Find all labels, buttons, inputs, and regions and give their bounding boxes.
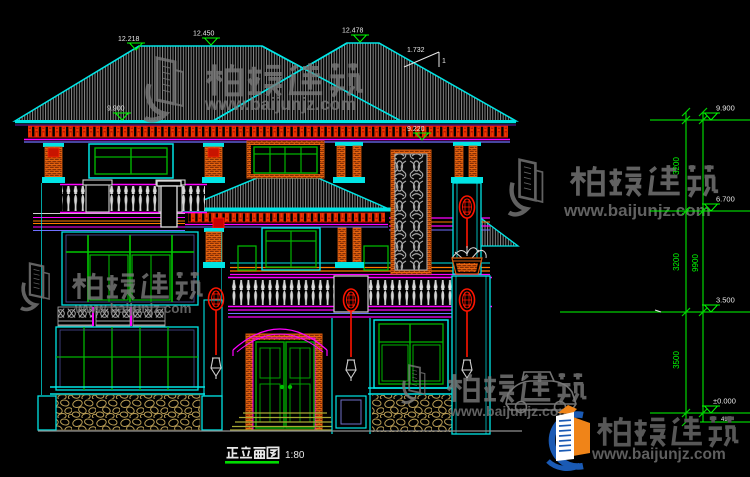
svg-text:9.900: 9.900 [716,104,735,113]
svg-text:9.900: 9.900 [107,106,125,113]
svg-text:3500: 3500 [672,351,681,369]
svg-text:12.450: 12.450 [193,31,215,38]
svg-text:12.478: 12.478 [342,28,364,35]
svg-text:3200: 3200 [672,253,681,271]
svg-text:1: 1 [442,58,446,65]
svg-text:3.500: 3.500 [716,296,735,305]
svg-text:www.baijunjz.com: www.baijunjz.com [449,403,571,419]
svg-text:www.baijunjz.com: www.baijunjz.com [74,301,192,316]
svg-text:www.baijunjz.com: www.baijunjz.com [591,446,726,463]
svg-text:6.700: 6.700 [716,195,735,204]
svg-text:1:80: 1:80 [285,450,305,461]
svg-text:9.220: 9.220 [407,126,425,133]
svg-text:1.732: 1.732 [407,47,425,54]
svg-text:3200: 3200 [672,157,681,175]
svg-text:9900: 9900 [691,254,700,272]
svg-text:www.baijunjz.com: www.baijunjz.com [204,94,356,114]
svg-text:12.218: 12.218 [118,36,140,43]
svg-text:±0.000: ±0.000 [713,397,736,406]
